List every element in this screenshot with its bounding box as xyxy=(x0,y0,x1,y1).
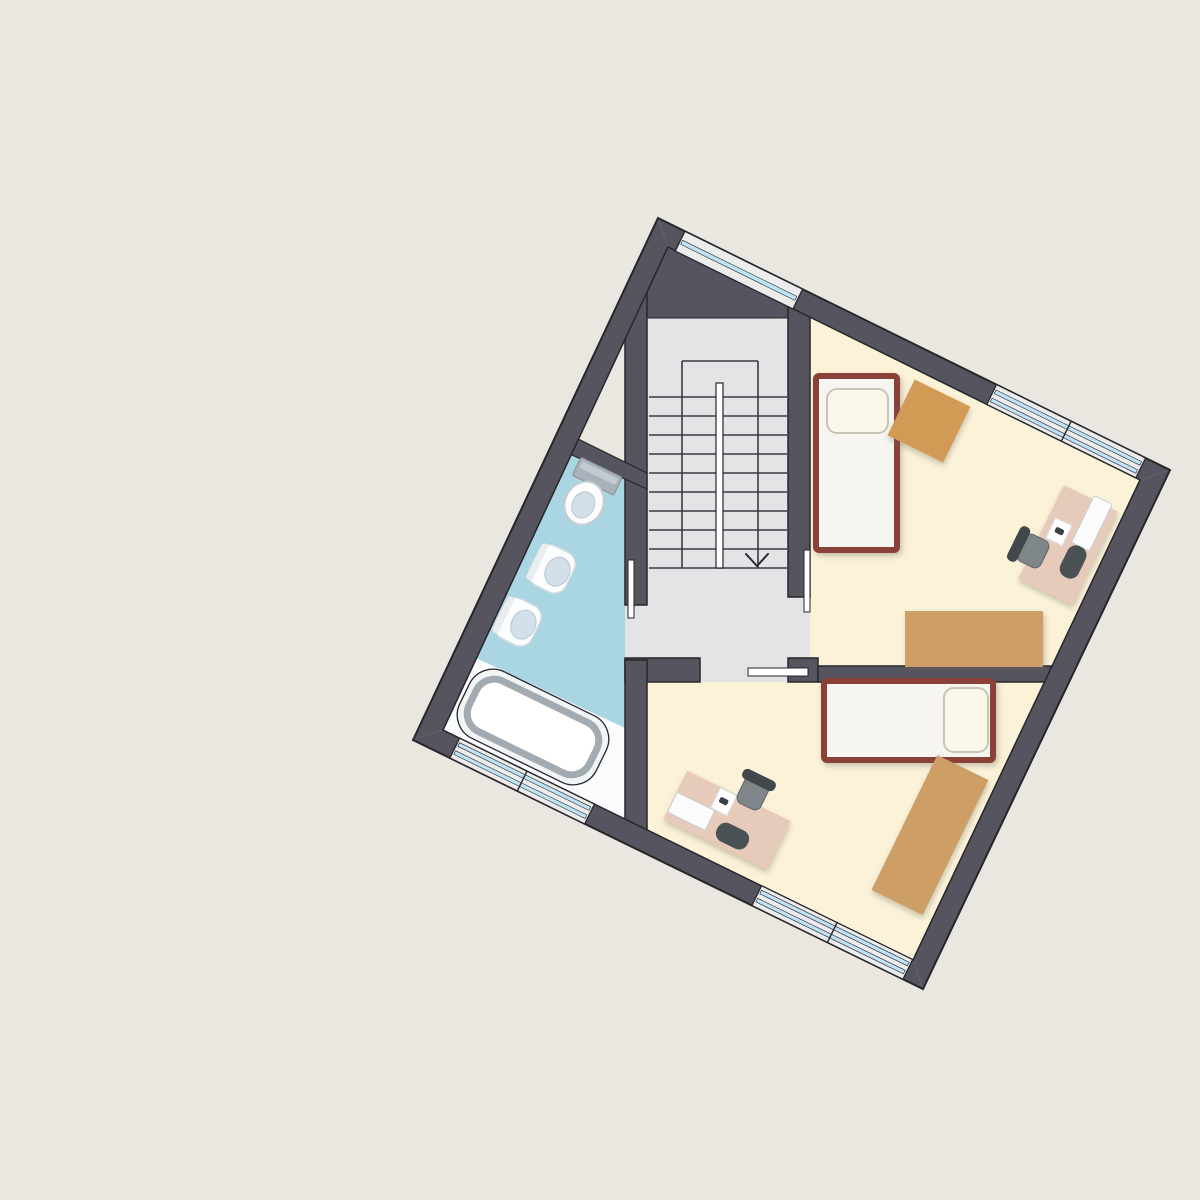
wardrobe-bedroom1 xyxy=(905,611,1043,667)
door-leaf-bedroom2 xyxy=(748,668,808,676)
floor-plan xyxy=(0,0,1200,1200)
bed-2-pillow xyxy=(944,688,988,752)
stair-handrail xyxy=(716,383,723,568)
door-jamb-bathroom xyxy=(628,560,634,618)
wall-hall-bathroom xyxy=(625,294,647,605)
door-jamb-bedroom1 xyxy=(804,550,810,612)
plan-root xyxy=(413,218,1170,989)
wall-bathroom-bedroom2 xyxy=(625,660,647,835)
floor-plan-canvas xyxy=(0,0,1200,1200)
bed-1-pillow xyxy=(827,389,888,433)
